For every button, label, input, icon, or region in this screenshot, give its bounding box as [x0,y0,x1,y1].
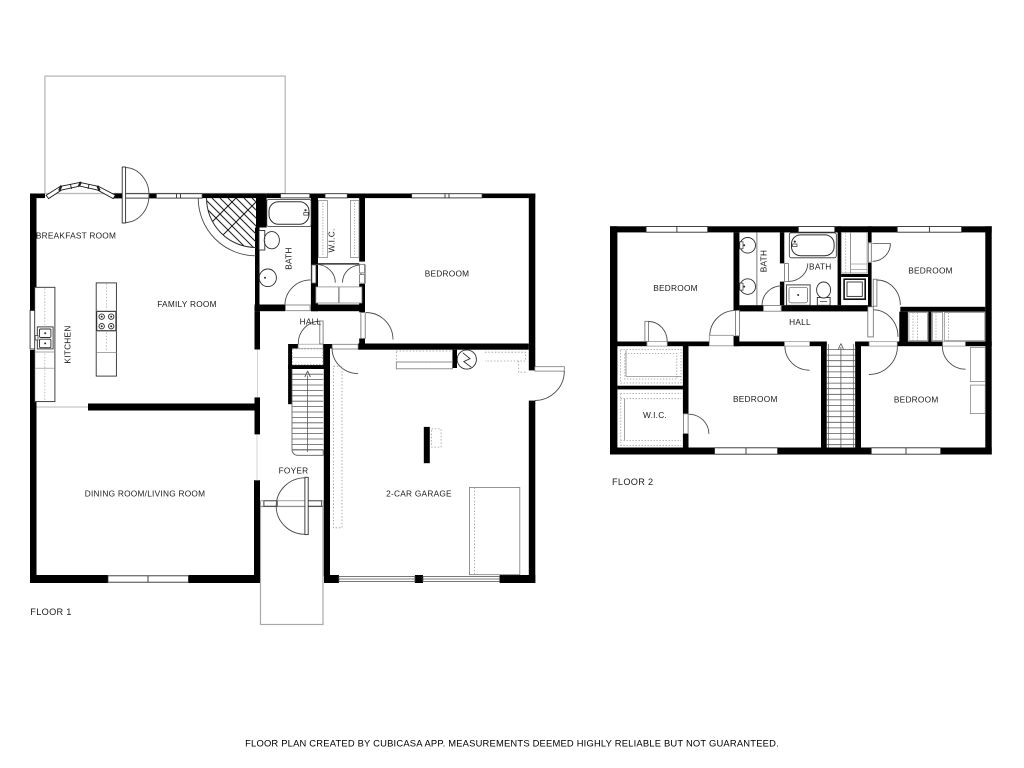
svg-text:BEDROOM: BEDROOM [908,266,953,276]
svg-text:2-CAR GARAGE: 2-CAR GARAGE [386,489,452,499]
svg-text:KITCHEN: KITCHEN [63,325,73,363]
svg-text:BATH: BATH [284,247,294,270]
svg-text:BEDROOM: BEDROOM [894,395,939,405]
svg-text:BREAKFAST ROOM: BREAKFAST ROOM [36,231,116,241]
svg-text:W.I.C.: W.I.C. [643,410,667,420]
svg-text:FLOOR 1: FLOOR 1 [30,607,71,617]
svg-text:FAMILY ROOM: FAMILY ROOM [157,299,217,309]
svg-text:FOYER: FOYER [279,466,309,476]
svg-text:HALL: HALL [789,317,811,327]
svg-text:W.I.C.: W.I.C. [327,228,337,252]
svg-text:FLOOR 2: FLOOR 2 [612,477,653,487]
svg-text:BATH: BATH [759,250,769,273]
svg-text:BEDROOM: BEDROOM [653,283,698,293]
svg-text:BEDROOM: BEDROOM [425,269,470,279]
svg-text:BATH: BATH [809,262,832,272]
svg-text:BEDROOM: BEDROOM [733,394,778,404]
svg-text:HALL: HALL [300,317,322,327]
svg-text:FLOOR PLAN CREATED BY CUBICASA: FLOOR PLAN CREATED BY CUBICASA APP. MEAS… [245,738,779,749]
svg-text:DINING ROOM/LIVING ROOM: DINING ROOM/LIVING ROOM [85,489,206,499]
